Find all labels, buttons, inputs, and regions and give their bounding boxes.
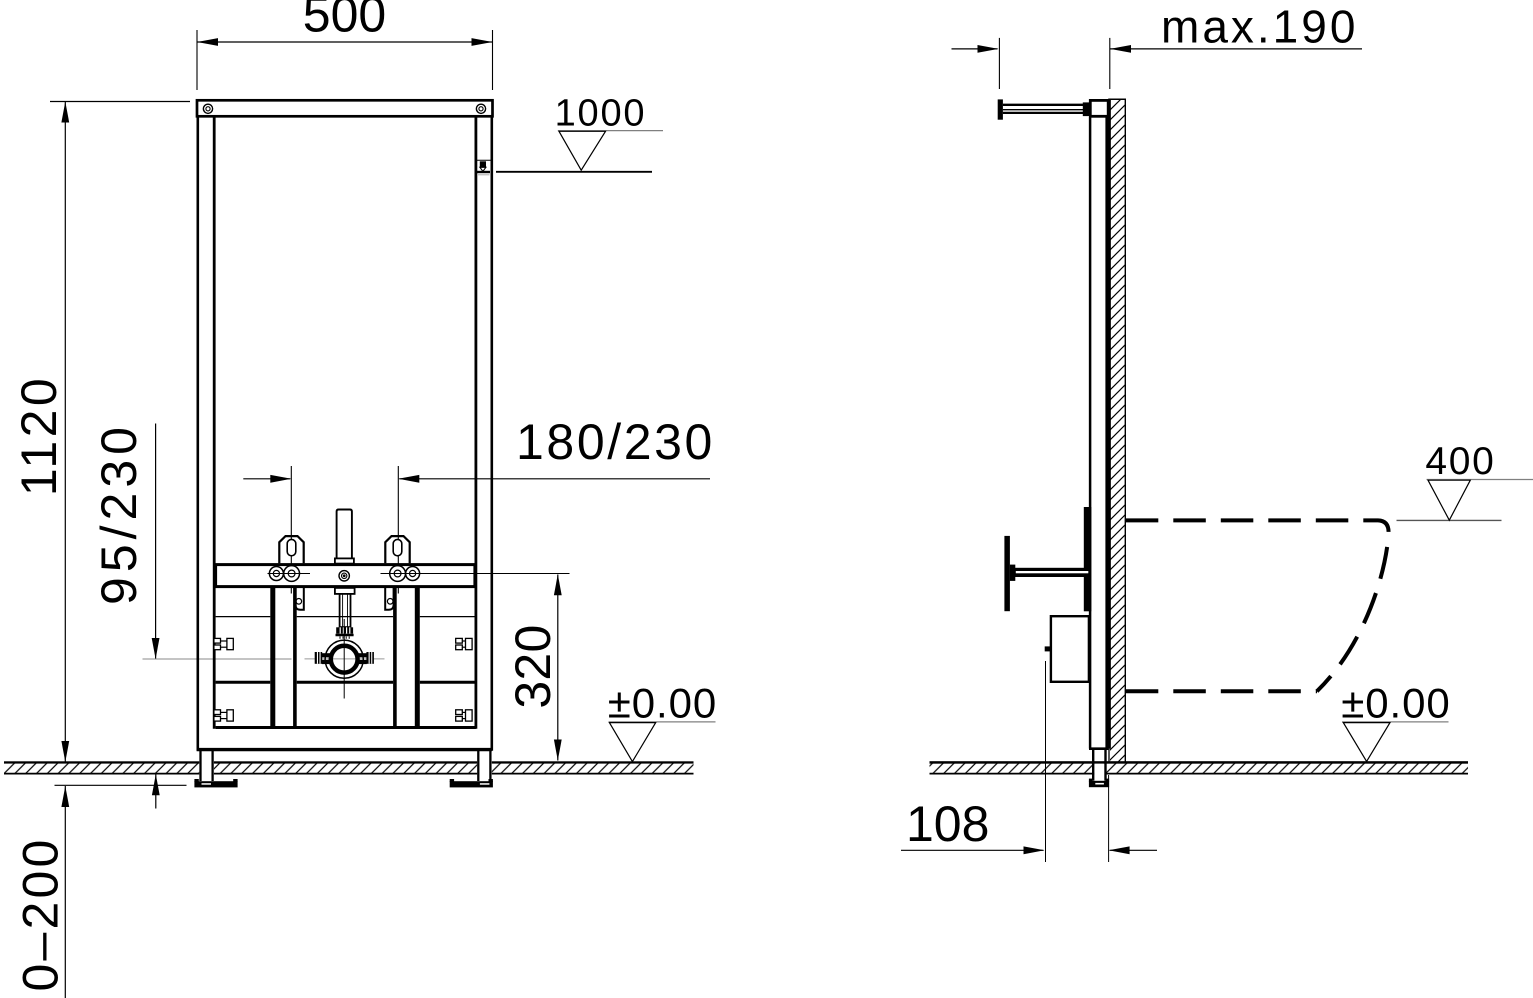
svg-text:0–200: 0–200 — [13, 836, 69, 991]
svg-text:1120: 1120 — [11, 375, 67, 496]
svg-text:1000: 1000 — [555, 93, 647, 135]
svg-text:±0.00: ±0.00 — [608, 680, 717, 727]
svg-text:400: 400 — [1425, 440, 1495, 483]
svg-text:320: 320 — [505, 624, 561, 708]
svg-text:180/230: 180/230 — [516, 414, 715, 470]
svg-text:±0.00: ±0.00 — [1341, 680, 1450, 727]
svg-text:108: 108 — [906, 796, 989, 852]
svg-text:max.190: max.190 — [1161, 1, 1358, 53]
svg-text:95/230: 95/230 — [91, 422, 147, 605]
svg-text:500: 500 — [303, 0, 386, 43]
